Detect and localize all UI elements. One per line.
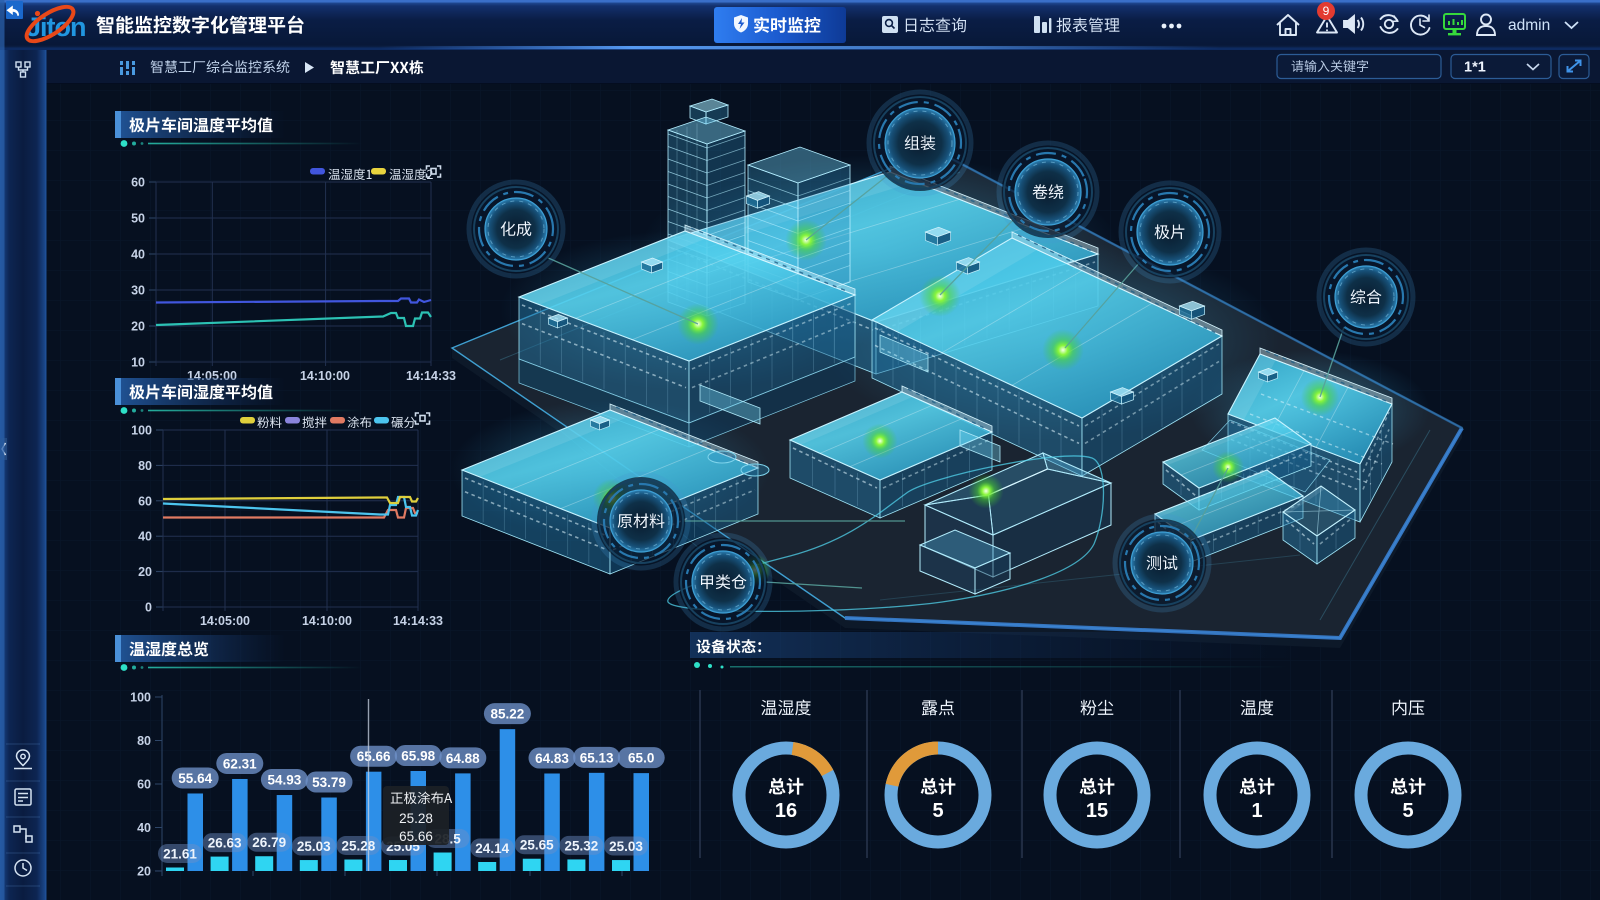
svg-text:25.65: 25.65 bbox=[520, 838, 554, 853]
svg-text:9: 9 bbox=[1323, 4, 1330, 18]
svg-text:14:10:00: 14:10:00 bbox=[300, 369, 350, 383]
svg-text:20: 20 bbox=[138, 565, 152, 579]
svg-text:25.03: 25.03 bbox=[297, 839, 331, 854]
svg-text:26.79: 26.79 bbox=[252, 835, 286, 850]
svg-text:64.83: 64.83 bbox=[535, 751, 569, 766]
svg-text:16: 16 bbox=[775, 800, 797, 822]
svg-text:60: 60 bbox=[131, 176, 145, 190]
svg-text:10: 10 bbox=[131, 356, 145, 370]
svg-text:5: 5 bbox=[1402, 800, 1413, 822]
svg-text:20: 20 bbox=[131, 320, 145, 334]
svg-text:85.22: 85.22 bbox=[491, 707, 525, 722]
svg-text:25.28: 25.28 bbox=[342, 839, 376, 854]
svg-text:50: 50 bbox=[131, 212, 145, 226]
svg-text:62.31: 62.31 bbox=[223, 756, 257, 771]
svg-text:53.79: 53.79 bbox=[312, 775, 346, 790]
svg-text:65.13: 65.13 bbox=[580, 750, 614, 765]
svg-text:64.88: 64.88 bbox=[446, 751, 480, 766]
svg-text:Jiton: Jiton bbox=[26, 12, 86, 42]
svg-text:55.64: 55.64 bbox=[178, 771, 212, 786]
svg-text:100: 100 bbox=[131, 424, 152, 438]
svg-text:60: 60 bbox=[138, 494, 152, 508]
svg-text:40: 40 bbox=[138, 530, 152, 544]
svg-text:admin: admin bbox=[1508, 17, 1550, 34]
svg-text:100: 100 bbox=[130, 691, 151, 705]
svg-text:30: 30 bbox=[131, 284, 145, 298]
svg-text:26.63: 26.63 bbox=[208, 836, 242, 851]
svg-text:80: 80 bbox=[138, 459, 152, 473]
svg-text:25.28: 25.28 bbox=[399, 811, 433, 826]
svg-text:65.66: 65.66 bbox=[357, 749, 391, 764]
svg-text:14:14:33: 14:14:33 bbox=[406, 369, 456, 383]
svg-text:15: 15 bbox=[1086, 800, 1108, 822]
svg-text:65.66: 65.66 bbox=[399, 829, 433, 844]
svg-text:54.93: 54.93 bbox=[268, 773, 302, 788]
svg-text:20: 20 bbox=[137, 865, 151, 879]
svg-text:80: 80 bbox=[137, 734, 151, 748]
svg-text:24.14: 24.14 bbox=[475, 841, 509, 856]
svg-text:14:05:00: 14:05:00 bbox=[200, 614, 250, 628]
svg-text:1*1: 1*1 bbox=[1464, 60, 1486, 76]
svg-text:40: 40 bbox=[131, 248, 145, 262]
svg-text:14:14:33: 14:14:33 bbox=[393, 614, 443, 628]
svg-text:40: 40 bbox=[137, 821, 151, 835]
svg-text:65.98: 65.98 bbox=[401, 748, 435, 763]
svg-text:5: 5 bbox=[932, 800, 943, 822]
svg-text:0: 0 bbox=[145, 601, 152, 615]
svg-text:14:10:00: 14:10:00 bbox=[302, 614, 352, 628]
svg-text:25.32: 25.32 bbox=[565, 838, 599, 853]
svg-text:21.61: 21.61 bbox=[163, 846, 197, 861]
svg-text:65.0: 65.0 bbox=[628, 751, 654, 766]
svg-text:1: 1 bbox=[1251, 800, 1262, 822]
svg-text:25.03: 25.03 bbox=[609, 839, 643, 854]
svg-text:60: 60 bbox=[137, 778, 151, 792]
